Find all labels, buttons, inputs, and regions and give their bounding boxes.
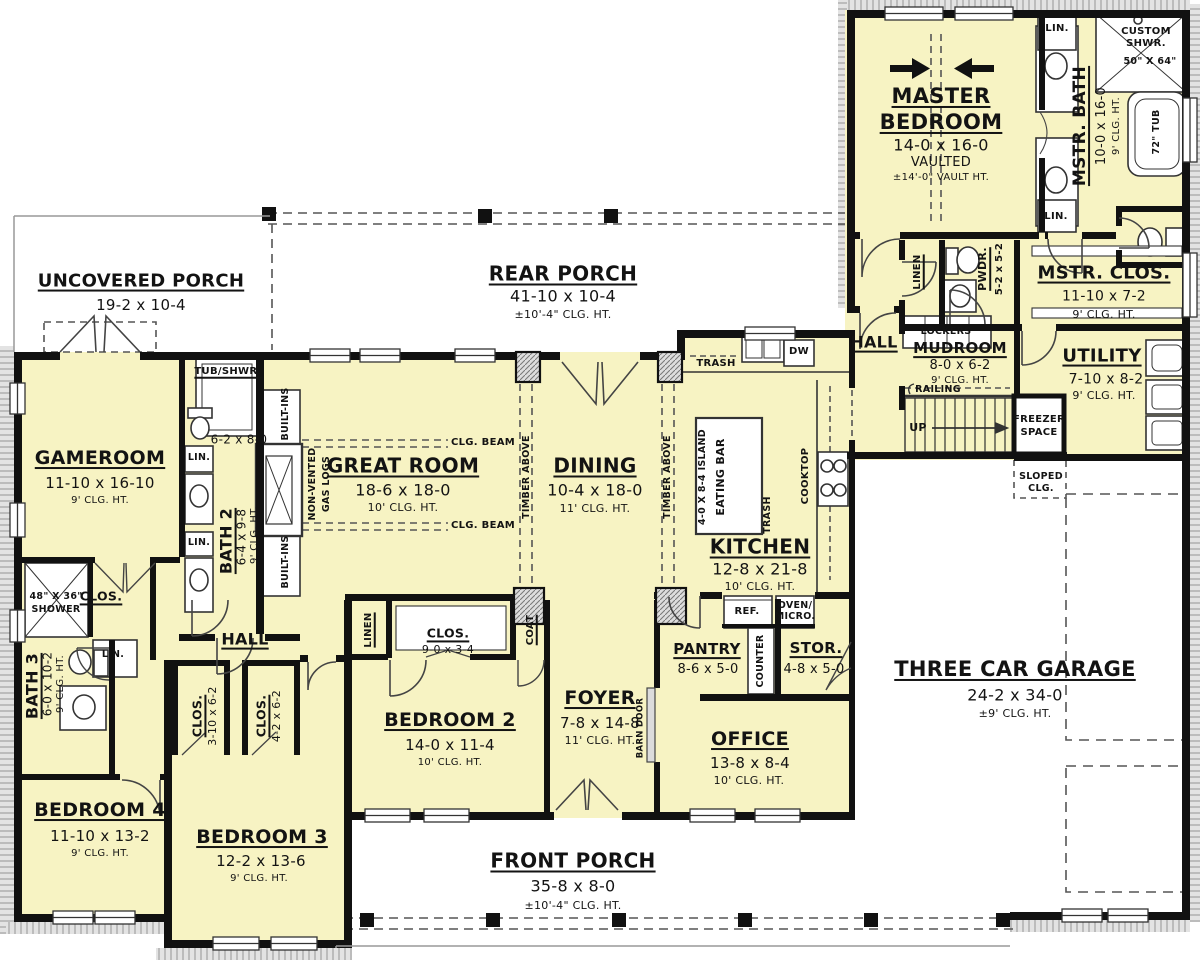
front-porch-label: FRONT PORCH (490, 851, 655, 872)
bath2-clg: 9' CLG. HT. (250, 506, 261, 564)
shower48-label-2: SHOWER (32, 605, 81, 615)
utility-dims: 7-10 x 8-2 (1069, 373, 1144, 388)
built-ins-label-1: BUILT-INS (281, 387, 291, 440)
kitchen-dims: 12-8 x 21-8 (712, 562, 808, 579)
mstr-clos-clg: 9' CLG. HT. (1072, 309, 1135, 321)
pwdr-toilet (946, 247, 979, 274)
bedroom2-dims: 14-0 x 11-4 (405, 738, 495, 754)
pantry-dims: 8-6 x 5-0 (677, 663, 738, 677)
pwdr-sink (944, 280, 976, 312)
great-room-dims: 18-6 x 18-0 (355, 483, 451, 500)
island-trash-label: TRASH (763, 496, 773, 533)
gas-logs-label-2: GAS LOGS (322, 456, 332, 512)
hall-master-label: HALL (850, 335, 897, 352)
ref-label: REF. (735, 607, 760, 618)
bath3-clg: 9' CLG. HT. (56, 655, 67, 713)
gas-logs-label-1: NON-VENTED (308, 448, 318, 521)
bath2-vanity (185, 474, 213, 524)
dryer (1146, 416, 1188, 450)
bedroom3-dims: 12-2 x 13-6 (216, 854, 306, 870)
dining-dims: 10-4 x 18-0 (547, 483, 643, 500)
office-label: OFFICE (711, 730, 789, 750)
utility-sink (1146, 340, 1188, 376)
front-porch-clg: ±10'-4" CLG. HT. (524, 900, 621, 912)
sloped-clg-label-2: CLG. (1028, 484, 1054, 494)
foyer-dims: 7-8 x 14-8 (560, 716, 640, 732)
counter-label: COUNTER (756, 634, 766, 687)
kitchen-clg: 10' CLG. HT. (725, 581, 796, 593)
great-room-clg: 10' CLG. HT. (368, 502, 439, 514)
dining-clg: 11' CLG. HT. (560, 503, 631, 515)
sloped-clg-label-1: SLOPED (1019, 472, 1063, 482)
oven-label-2: MICRO. (775, 612, 816, 622)
office-dims: 13-8 x 8-4 (710, 756, 790, 772)
garage-label: THREE CAR GARAGE (894, 658, 1136, 680)
kitchen-label: KITCHEN (710, 537, 811, 558)
mstr-clos-label: MSTR. CLOS. (1038, 265, 1171, 284)
washer (1146, 380, 1188, 414)
bath2-dims: 6-4 x 9-8 (236, 509, 249, 566)
pwdr-label: PWDR. (977, 247, 989, 291)
mstr-clos-dims: 11-10 x 7-2 (1062, 290, 1146, 305)
clos9-label: CLOS. (427, 626, 470, 639)
bath3-dims: 6-0 x 10-2 (42, 652, 55, 717)
built-ins-label-2: BUILT-INS (281, 535, 291, 588)
stor-label: STOR. (790, 641, 843, 657)
hall-bed-label: HALL (221, 632, 268, 649)
bath2-lin-label-1: LIN. (188, 453, 210, 463)
bedroom2-clg: 10' CLG. HT. (418, 758, 483, 769)
cooktop (818, 452, 848, 506)
bath3-label: BATH 3 (25, 653, 42, 719)
gameroom-clg: 9' CLG. HT. (71, 496, 129, 507)
rear-porch-label: REAR PORCH (489, 264, 637, 285)
up-label: UP (909, 422, 927, 434)
dw-label: DW (789, 347, 809, 358)
counter-trash-label: TRASH (696, 359, 735, 370)
bedroom4-label: BEDROOM 4 (34, 801, 166, 821)
bedroom3-clg: 9' CLG. HT. (230, 874, 288, 885)
foyer-label: FOYER (564, 689, 635, 709)
garage-dims: 24-2 x 34-0 (967, 688, 1063, 705)
clos9-dims: 9-0 x 3-4 (422, 644, 474, 656)
cooktop-label: COOKTOP (801, 448, 812, 505)
timber-above-label-2: TIMBER ABOVE (663, 435, 673, 519)
clg-beam-label-1: CLG. BEAM (448, 438, 518, 449)
pwdr-dims: 5-2 x 5-2 (995, 243, 1006, 295)
island-label: 4-0 X 8-4 ISLAND (698, 429, 708, 525)
master-bedroom-clg: ±14'-0" VAULT HT. (893, 173, 989, 184)
custom-shwr-dims: 50" X 64" (1124, 57, 1177, 67)
foyer-clg: 11' CLG. HT. (565, 735, 636, 747)
mstr-bath-label: MSTR. BATH (1072, 66, 1090, 186)
freezer-label-2: SPACE (1020, 428, 1057, 439)
floor-plan: UNCOVERED PORCH 19-2 x 10-4 REAR PORCH 4… (0, 0, 1200, 966)
freezer-label-1: FREEZER (1013, 415, 1065, 426)
master-bedroom-label-2: BEDROOM (880, 111, 1003, 133)
bath3-clos-label: CLOS. (80, 589, 123, 602)
mudroom-label: MUDROOM (913, 341, 1007, 357)
uncovered-porch-label: UNCOVERED PORCH (38, 273, 244, 292)
custom-shwr-label-1: CUSTOM (1121, 27, 1171, 38)
utility-label: UTILITY (1062, 348, 1141, 367)
great-room-label: GREAT ROOM (327, 456, 479, 477)
uncovered-porch-dims: 19-2 x 10-4 (96, 298, 186, 314)
lockers-label: LOCKERS (921, 327, 972, 337)
clos4-dims: 4-2 x 6-2 (271, 690, 283, 742)
railing-label: RAILING (915, 385, 961, 395)
bedroom4-clg: 9' CLG. HT. (71, 849, 129, 860)
tub-label: 72" TUB (1152, 109, 1162, 154)
linen-master-label: LINEN (913, 254, 924, 289)
bath3-vanity (60, 686, 106, 730)
clg-beam-label-2: CLG. BEAM (448, 521, 518, 532)
master-bedroom-vaulted: VAULTED (911, 156, 971, 170)
bedroom3-label: BEDROOM 3 (196, 828, 328, 848)
lin-label-top: LIN. (1045, 24, 1068, 35)
master-bedroom-dims: 14-0 x 16-0 (893, 138, 989, 155)
barn-door-label: BARN DOOR (637, 698, 646, 758)
tub-shwr-label: TUB/SHWR. (194, 367, 261, 378)
bath2-lin-label-2: LIN. (188, 538, 210, 548)
mstr-bath-clg: 9' CLG. HT. (1112, 97, 1123, 155)
custom-shwr-label-2: SHWR. (1126, 39, 1166, 50)
clos4-label: CLOS. (254, 695, 267, 738)
bedroom2-label: BEDROOM 2 (384, 711, 516, 731)
dining-label: DINING (553, 456, 636, 477)
coat-label: COAT (526, 615, 537, 646)
rear-porch-dims: 41-10 x 10-4 (510, 289, 616, 306)
rear-porch-clg: ±10'-4" CLG. HT. (514, 309, 611, 321)
bedroom4-dims: 11-10 x 13-2 (50, 829, 150, 845)
master-bedroom-label-1: MASTER (892, 85, 991, 107)
timber-above-label-1: TIMBER ABOVE (522, 435, 532, 519)
lin-label-bottom: LIN. (1044, 212, 1067, 223)
clos3-label: CLOS. (190, 695, 203, 738)
mstr-bath-dims: 10-0 x 16-0 (1095, 87, 1109, 165)
bath2-vanity2 (185, 558, 213, 612)
oven-label-1: OVEN/ (778, 601, 813, 611)
mudroom-dims: 8-0 x 6-2 (929, 359, 990, 373)
bath2-toilet-dims: 6-2 x 8-0 (211, 434, 268, 447)
eating-bar-label: EATING BAR (715, 438, 727, 515)
gameroom-label: GAMEROOM (35, 449, 165, 469)
gameroom-dims: 11-10 x 16-10 (45, 476, 155, 492)
garage-clg: ±9' CLG. HT. (979, 708, 1052, 720)
stor-dims: 4-8 x 5-0 (783, 663, 844, 677)
barn-door-panel (647, 688, 655, 762)
utility-clg: 9' CLG. HT. (1072, 390, 1135, 402)
bath3-lin-label: LIN. (102, 650, 124, 660)
bath2-label: BATH 2 (219, 508, 236, 574)
office-clg: 10' CLG. HT. (714, 775, 785, 787)
linen2-label: LINEN (364, 612, 375, 647)
shower48-label-1: 48" X 36" (30, 592, 83, 602)
clos3-dims: 3-10 x 6-2 (207, 686, 219, 745)
front-porch-dims: 35-8 x 8-0 (530, 879, 615, 896)
pantry-label: PANTRY (673, 642, 740, 658)
